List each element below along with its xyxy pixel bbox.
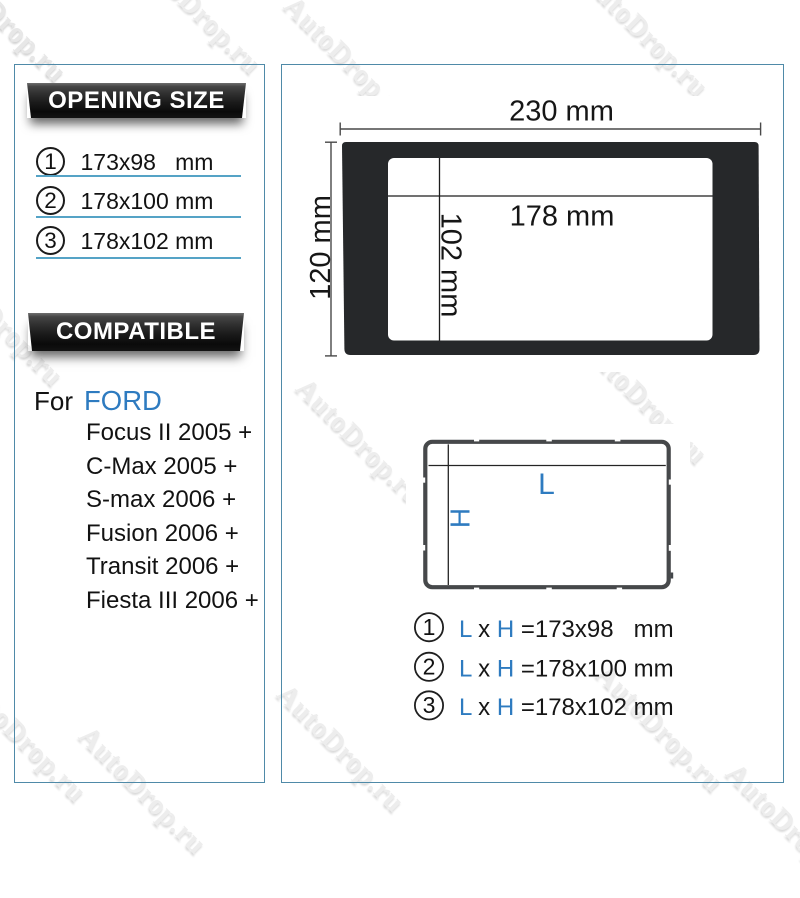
svg-text:L x H =173x98 mm: L x H =173x98 mm xyxy=(459,616,674,643)
svg-text:102 mm: 102 mm xyxy=(435,213,467,318)
svg-text:178 mm: 178 mm xyxy=(510,201,615,233)
svg-text:2: 2 xyxy=(423,654,436,680)
svg-text:120 mm: 120 mm xyxy=(305,195,337,300)
svg-text:L x H =178x102 mm: L x H =178x102 mm xyxy=(459,694,674,721)
svg-text:230 mm: 230 mm xyxy=(509,96,614,128)
svg-text:1: 1 xyxy=(423,614,436,640)
svg-text:3: 3 xyxy=(423,692,436,718)
svg-text:L: L xyxy=(538,468,555,501)
svg-text:H: H xyxy=(445,508,476,528)
svg-text:L x H =178x100 mm: L x H =178x100 mm xyxy=(459,656,674,683)
